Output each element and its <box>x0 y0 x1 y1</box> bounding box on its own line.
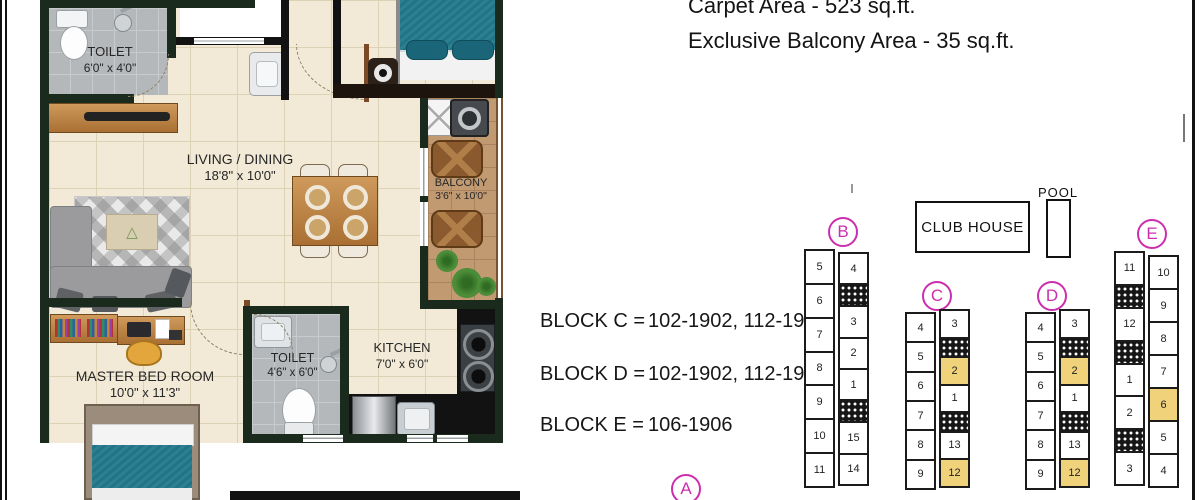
balcony-area-text: Exclusive Balcony Area - 35 sq.ft. <box>688 28 1015 54</box>
unit-cell: 6 <box>1148 387 1179 422</box>
stair-core <box>1059 337 1090 358</box>
unit-cell: 10 <box>1148 255 1179 290</box>
block-d-value: 102-1902, 112-1912 <box>648 363 827 386</box>
room-name: TOILET <box>50 44 170 61</box>
tower-block-c: 4567893211312 <box>905 309 970 500</box>
washer-drum <box>458 107 481 130</box>
stair-core <box>939 337 970 358</box>
unit-cell: 7 <box>905 400 936 431</box>
unit-cell: 1 <box>939 384 970 414</box>
unit-cell: 2 <box>1059 356 1090 386</box>
stair-core <box>939 411 970 432</box>
block-e-label: BLOCK E = <box>540 414 648 437</box>
unit-cell: 1 <box>838 368 869 401</box>
unit-cell: 6 <box>1025 371 1056 402</box>
stair-core <box>1114 428 1145 453</box>
room-label-living: LIVING / DINING 18'8" x 10'0" <box>150 150 330 185</box>
unit-cell: 9 <box>905 459 936 490</box>
unit-cell: 5 <box>804 249 835 285</box>
outer-left-wall <box>0 0 7 500</box>
toilet2-top-wall <box>243 306 349 314</box>
basin-bowl <box>256 61 278 87</box>
block-marker-b: B <box>828 217 858 247</box>
plate <box>343 185 368 210</box>
unit-cell: 5 <box>905 341 936 372</box>
master-bed-pillows <box>92 424 194 446</box>
block-marker-e: E <box>1137 219 1167 249</box>
room-dims: 10'0" x 11'3" <box>55 385 235 402</box>
unit-cell: 7 <box>1025 400 1056 431</box>
room-dims: 7'0" x 6'0" <box>352 357 452 373</box>
laptop <box>127 322 151 337</box>
lower-boundary-wall <box>230 491 520 500</box>
dining-table <box>292 176 378 246</box>
toilet-top-wall <box>40 0 255 8</box>
unit-cell: 9 <box>1148 288 1179 323</box>
room-dims: 3'6" x 10'0" <box>424 190 498 204</box>
room-label-toilet-bottom: TOILET 4'6" x 6'0" <box>250 350 335 381</box>
unit-left-wall <box>40 0 49 443</box>
unit-cell: 9 <box>1025 459 1056 490</box>
unit-cell: 3 <box>1059 309 1090 339</box>
tick-mark <box>1183 114 1185 142</box>
master-top-wall <box>40 298 182 307</box>
stair-core <box>1059 411 1090 432</box>
unit-cell: 13 <box>939 431 970 461</box>
plant <box>436 250 458 272</box>
room-dims: 18'8" x 10'0" <box>150 168 330 185</box>
unit-cell: 10 <box>804 418 835 454</box>
unit-cell: 4 <box>838 252 869 285</box>
brochure-page: △ <box>0 0 1200 500</box>
kitchen-sink <box>397 402 435 436</box>
bottom-window <box>437 435 468 442</box>
shower-head <box>114 14 132 32</box>
floorplan: △ <box>0 0 512 500</box>
stair-core <box>838 399 869 423</box>
stair-core <box>838 283 869 307</box>
unit-cell: 14 <box>838 453 869 486</box>
unit-cell: 8 <box>905 429 936 460</box>
washing-machine <box>450 99 489 137</box>
tv <box>84 112 170 121</box>
unit-cell: 1 <box>1059 384 1090 414</box>
room-name: TOILET <box>250 350 335 366</box>
wicker-chair <box>431 210 483 248</box>
bed2-pillow <box>406 40 448 60</box>
club-house: CLUB HOUSE <box>915 201 1030 253</box>
unit-cell: 12 <box>939 458 970 488</box>
tower-block-d: 4567893211312 <box>1025 309 1090 500</box>
folding-table <box>427 99 451 136</box>
unit-cell: 4 <box>1148 453 1179 488</box>
kitchen-right-wall <box>495 298 503 443</box>
plate <box>305 185 330 210</box>
keypad <box>169 330 182 340</box>
unit-cell: 5 <box>1025 341 1056 372</box>
toilet2-kitchen-divider <box>340 306 349 443</box>
plate <box>343 215 368 240</box>
room-label-master: MASTER BED ROOM 10'0" x 11'3" <box>55 367 235 402</box>
unit-cell: 13 <box>1059 431 1090 461</box>
tower-block-e: 111212310987654 <box>1114 251 1179 500</box>
tick-mark <box>851 184 853 193</box>
foyer-window <box>194 38 264 44</box>
unit-cell: 9 <box>804 384 835 420</box>
bedroom-right-wall <box>495 0 503 98</box>
unit-cell: 5 <box>1148 420 1179 455</box>
carpet-area-text: Carpet Area - 523 sq.ft. <box>688 0 915 19</box>
unit-cell: 4 <box>905 312 936 343</box>
pool <box>1046 199 1071 258</box>
unit-cell: 3 <box>1114 451 1145 486</box>
foyer-right-wall <box>281 0 289 100</box>
room-dims: 4'6" x 6'0" <box>250 366 335 381</box>
unit-cell: 7 <box>1148 354 1179 389</box>
block-c-value: 102-1902, 112-1912 <box>648 310 827 333</box>
room-label-balcony: BALCONY 3'6" x 10'0" <box>424 176 498 204</box>
bed2-pillow <box>452 40 494 60</box>
unit-cell: 12 <box>1114 307 1145 342</box>
balcony-bottom-wall <box>420 300 503 309</box>
room-label-toilet-top: TOILET 6'0" x 4'0" <box>50 44 170 76</box>
bedroom-shelf <box>333 84 502 98</box>
master-bed-sheet <box>92 488 192 500</box>
unit-cell: 6 <box>905 371 936 402</box>
books <box>55 319 81 337</box>
stair-core <box>1114 340 1145 365</box>
unit-cell: 2 <box>1114 395 1145 430</box>
bottom-window <box>303 435 343 442</box>
room-label-kitchen: KITCHEN 7'0" x 6'0" <box>352 340 452 372</box>
unit-cell: 12 <box>1059 458 1090 488</box>
desk-chair <box>126 340 162 366</box>
pool-label: POOL <box>1038 185 1078 200</box>
steel-appliance <box>352 396 396 435</box>
unit-cell: 8 <box>1025 429 1056 460</box>
room-dims: 6'0" x 4'0" <box>50 61 170 77</box>
unit-cell: 11 <box>804 452 835 488</box>
gas-burner <box>463 329 494 360</box>
block-c-label: BLOCK C = <box>540 310 648 333</box>
room-name: LIVING / DINING <box>150 150 330 168</box>
block-e-row: BLOCK E = 106-1906 <box>540 414 733 437</box>
speaker-cone <box>374 64 392 82</box>
unit-cell: 8 <box>1148 321 1179 356</box>
books <box>87 319 113 337</box>
paper <box>155 319 170 339</box>
unit-cell: 3 <box>838 305 869 338</box>
room-name: BALCONY <box>424 176 498 190</box>
unit-cell: 4 <box>1025 312 1056 343</box>
unit-cell: 2 <box>838 337 869 370</box>
unit-cell: 3 <box>939 309 970 339</box>
block-marker-a: A <box>671 474 701 500</box>
block-d-label: BLOCK D = <box>540 363 648 386</box>
page-divider-line <box>1192 0 1195 500</box>
unit-cell: 1 <box>1114 363 1145 398</box>
wash-basin <box>249 52 285 96</box>
gas-burner <box>463 361 494 392</box>
block-e-value: 106-1906 <box>648 414 733 437</box>
block-marker-c: C <box>922 281 952 311</box>
block-d-row: BLOCK D = 102-1902, 112-1912 <box>540 363 827 386</box>
coffee-table: △ <box>106 214 158 250</box>
block-marker-d: D <box>1037 281 1067 311</box>
kitchen-sink-bowl <box>404 408 430 430</box>
block-c-row: BLOCK C = 102-1902, 112-1912 <box>540 310 827 333</box>
master-bed-blanket <box>92 445 192 488</box>
wicker-chair <box>431 140 483 178</box>
plate <box>305 215 330 240</box>
balcony-window <box>420 202 428 246</box>
unit-cell: 11 <box>1114 251 1145 286</box>
unit-cell: 15 <box>838 421 869 454</box>
plant <box>477 277 496 296</box>
bedroom-divider-wall <box>333 0 341 86</box>
room-name: MASTER BED ROOM <box>55 367 235 385</box>
unit-cell: 2 <box>939 356 970 386</box>
stair-core <box>1114 284 1145 309</box>
bottom-window <box>407 435 433 442</box>
toilet-bottom-wall <box>40 94 134 103</box>
bookshelf <box>50 314 118 343</box>
room-name: KITCHEN <box>352 340 452 357</box>
